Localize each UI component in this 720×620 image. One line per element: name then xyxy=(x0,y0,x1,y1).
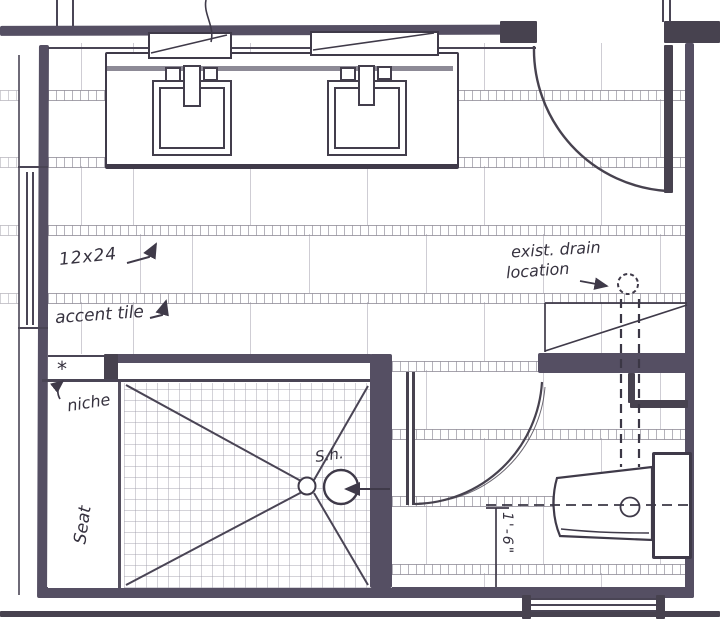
drain-offset-diagonal xyxy=(545,305,687,351)
tile-size-arrow xyxy=(127,244,156,263)
shower-slope-line xyxy=(314,386,368,480)
mirror-diagonal xyxy=(151,35,227,53)
existing-drain-circle xyxy=(618,274,638,294)
shower-head-circle xyxy=(324,470,358,504)
toilet-flush-circle xyxy=(621,498,640,517)
shower-slope-line xyxy=(314,493,368,585)
mirror-diagonal xyxy=(313,33,434,50)
existing-drain-arrow xyxy=(580,281,607,286)
entry-door-swing-arc xyxy=(534,46,667,191)
shower-slope-line xyxy=(126,385,301,481)
shower-slope-line xyxy=(126,492,302,585)
niche-arrow xyxy=(58,381,63,399)
shower-drain-circle xyxy=(299,478,316,495)
wc-door-swing-arc xyxy=(415,382,542,504)
leader-line xyxy=(206,0,212,42)
niche-marker-asterisk: * xyxy=(57,357,67,381)
toilet-offset-dimension-label: 1'-6" xyxy=(499,512,515,555)
accent-tile-arrow xyxy=(150,301,166,318)
wc-door-swing-arc xyxy=(419,387,545,503)
floor-plan-canvas: 12x24 accent tile exist. drain location … xyxy=(0,0,720,620)
